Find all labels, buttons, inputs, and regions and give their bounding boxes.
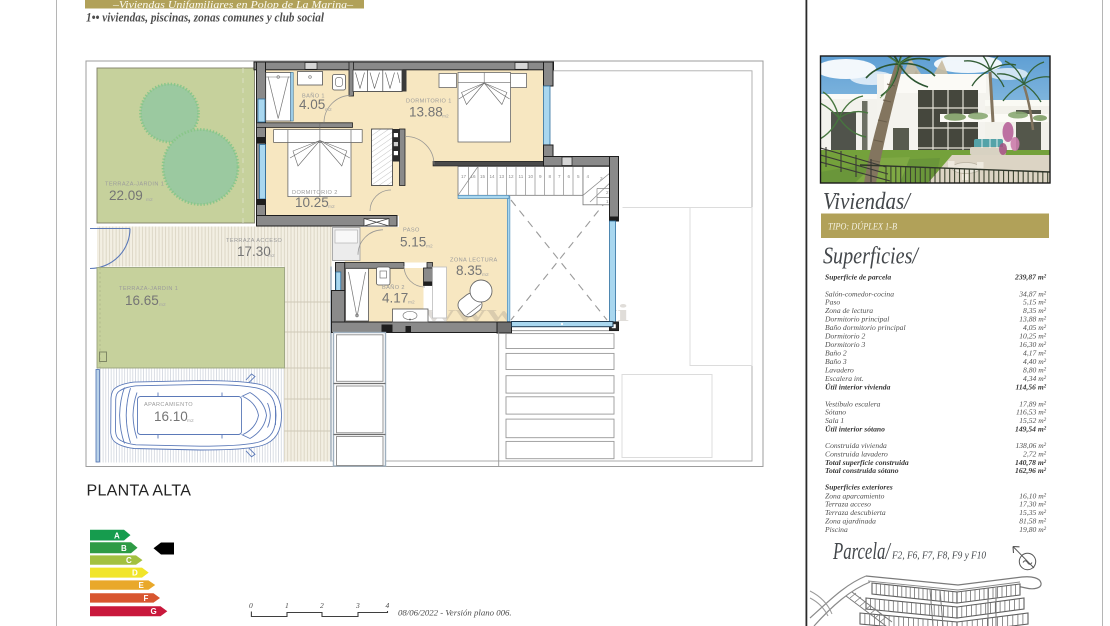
svg-text:E: E [139, 581, 145, 590]
svg-text:8: 8 [549, 174, 552, 179]
svg-text:13.88: 13.88 [409, 105, 443, 120]
svg-text:m2: m2 [268, 253, 275, 259]
svg-text:TERRAZA-JARDIN 1: TERRAZA-JARDIN 1 [105, 182, 164, 188]
svg-text:m2: m2 [325, 107, 332, 113]
svg-text:17.30: 17.30 [237, 244, 271, 259]
svg-text:Total construida sótano: Total construida sótano [825, 466, 899, 475]
svg-text:m2: m2 [408, 300, 415, 306]
svg-text:08/06/2022 - Versión plano 006: 08/06/2022 - Versión plano 006. [398, 608, 512, 618]
svg-text:m2: m2 [482, 272, 489, 278]
svg-text:TIPO: DÚPLEX 1-B: TIPO: DÚPLEX 1-B [828, 221, 897, 233]
svg-text:3: 3 [600, 176, 603, 181]
svg-text:10.25: 10.25 [295, 195, 329, 210]
svg-text:C: C [126, 556, 132, 565]
svg-text:4.17: 4.17 [382, 291, 408, 306]
svg-text:15: 15 [480, 174, 486, 179]
svg-text:6: 6 [568, 174, 571, 179]
svg-text:11: 11 [519, 174, 524, 179]
svg-text:0: 0 [249, 601, 253, 610]
svg-text:2: 2 [320, 601, 324, 610]
svg-text:Superficies exteriores: Superficies exteriores [825, 482, 893, 491]
svg-text:m2: m2 [442, 114, 449, 120]
svg-text:Superficie de parcela: Superficie de parcela [825, 273, 891, 282]
svg-text:1•• viviendas, piscinas, zonas: 1•• viviendas, piscinas, zonas comunes y… [86, 10, 324, 25]
svg-text:Parcela/: Parcela/ [832, 539, 891, 565]
svg-text:16: 16 [471, 174, 477, 179]
svg-text:149,54 m²: 149,54 m² [1015, 424, 1047, 433]
svg-text:10: 10 [528, 174, 534, 179]
svg-text:m2: m2 [187, 418, 194, 424]
svg-text:3: 3 [355, 601, 360, 610]
svg-text:5: 5 [577, 174, 580, 179]
svg-text:Superficies/: Superficies/ [823, 244, 920, 270]
svg-text:PASO: PASO [403, 228, 420, 234]
svg-text:16.10: 16.10 [154, 409, 188, 424]
svg-text:14: 14 [490, 174, 496, 179]
svg-text:4: 4 [386, 601, 390, 610]
svg-text:F2, F6, F7, F8, F9 y F10: F2, F6, F7, F8, F9 y F10 [891, 550, 986, 562]
svg-text:A: A [114, 531, 120, 540]
svg-text:TERRAZA-JARDIN 1: TERRAZA-JARDIN 1 [119, 286, 178, 292]
svg-text:D: D [132, 568, 138, 577]
svg-text:13: 13 [499, 174, 505, 179]
svg-text:m2: m2 [146, 197, 153, 203]
svg-text:1: 1 [606, 199, 609, 204]
svg-text:239,87 m²: 239,87 m² [1014, 273, 1047, 282]
svg-text:19,80 m²: 19,80 m² [1019, 525, 1046, 534]
svg-text:Útil interior sótano: Útil interior sótano [825, 423, 885, 433]
svg-text:G: G [151, 607, 157, 616]
svg-text:B: B [121, 544, 127, 553]
svg-text:4.05: 4.05 [299, 97, 325, 112]
svg-text:Viviendas/: Viviendas/ [823, 189, 912, 215]
svg-text:F: F [144, 594, 149, 603]
svg-text:7: 7 [558, 174, 561, 179]
svg-text:114,56 m²: 114,56 m² [1015, 382, 1046, 391]
svg-text:2: 2 [606, 190, 609, 195]
svg-text:8.35: 8.35 [456, 263, 482, 278]
svg-text:m2: m2 [159, 302, 166, 308]
svg-text:9: 9 [539, 174, 542, 179]
svg-text:4: 4 [587, 174, 590, 179]
svg-text:162,96 m²: 162,96 m² [1015, 466, 1047, 475]
svg-text:APARCAMIENTO: APARCAMIENTO [144, 402, 193, 408]
svg-text:17: 17 [461, 174, 467, 179]
svg-text:Útil interior vivienda: Útil interior vivienda [825, 381, 891, 391]
svg-text:1: 1 [285, 601, 289, 610]
svg-text:Piscina: Piscina [824, 525, 848, 534]
svg-text:12: 12 [509, 174, 515, 179]
svg-text:5.15: 5.15 [400, 235, 426, 250]
svg-text:m2: m2 [426, 244, 433, 250]
svg-text:16.65: 16.65 [125, 293, 159, 308]
svg-text:m2: m2 [328, 204, 335, 210]
svg-text:22.09: 22.09 [109, 188, 143, 203]
svg-text:PLANTA ALTA: PLANTA ALTA [87, 483, 192, 500]
